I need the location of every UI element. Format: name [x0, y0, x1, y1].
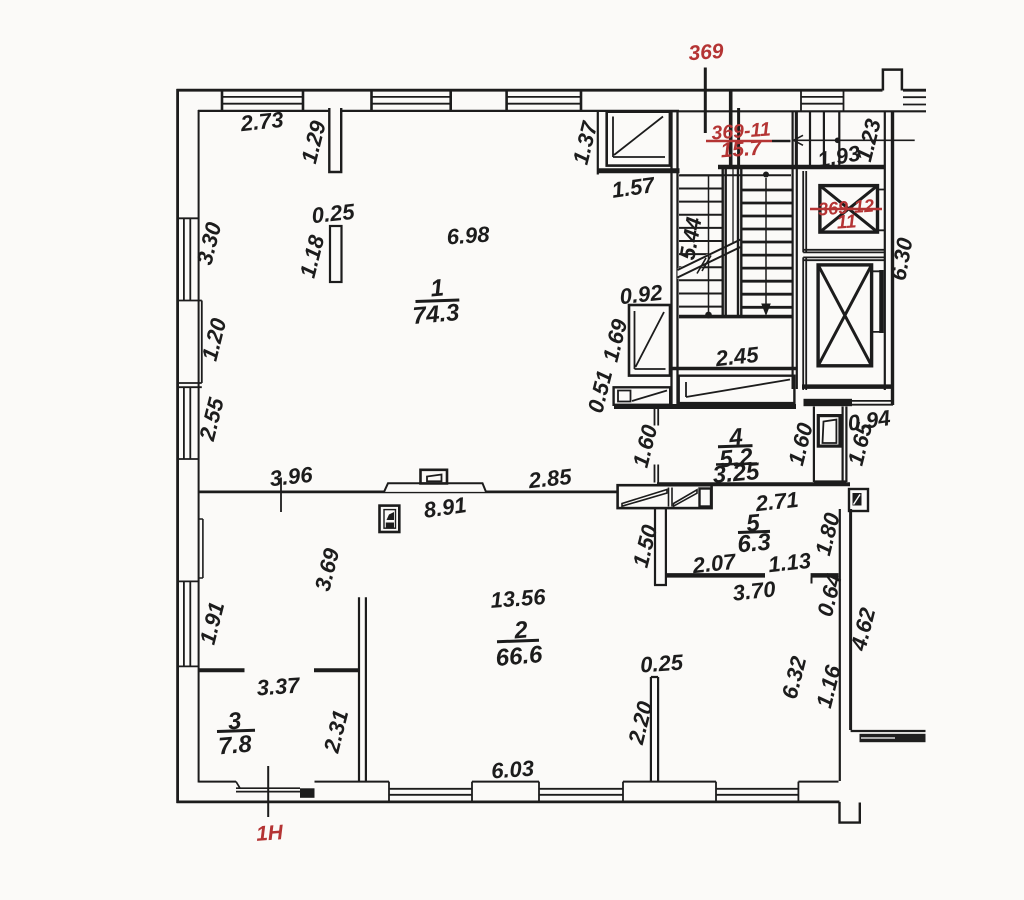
svg-text:11: 11	[836, 211, 857, 233]
svg-text:3.96: 3.96	[268, 462, 314, 491]
svg-text:66.6: 66.6	[495, 641, 545, 672]
svg-text:1H: 1H	[255, 821, 284, 846]
svg-text:74.3: 74.3	[412, 299, 462, 330]
svg-text:369: 369	[688, 40, 725, 65]
svg-text:6.03: 6.03	[490, 756, 534, 784]
svg-text:1.13: 1.13	[767, 548, 812, 577]
svg-text:0.25: 0.25	[310, 199, 356, 228]
svg-text:2.71: 2.71	[753, 487, 799, 516]
svg-text:0.25: 0.25	[639, 649, 684, 677]
svg-text:3.25: 3.25	[712, 458, 762, 489]
svg-text:2.07: 2.07	[690, 549, 738, 579]
svg-text:13.56: 13.56	[490, 584, 547, 613]
svg-text:7.8: 7.8	[217, 731, 253, 761]
svg-text:2.73: 2.73	[238, 107, 284, 136]
svg-text:15.7: 15.7	[720, 137, 764, 163]
svg-text:2.45: 2.45	[713, 342, 760, 372]
svg-text:6.98: 6.98	[446, 221, 491, 249]
svg-text:1: 1	[429, 274, 445, 302]
svg-text:0.92: 0.92	[618, 280, 664, 309]
svg-text:2.85: 2.85	[526, 464, 573, 494]
svg-text:3.70: 3.70	[731, 576, 777, 605]
svg-text:3.37: 3.37	[256, 672, 302, 700]
